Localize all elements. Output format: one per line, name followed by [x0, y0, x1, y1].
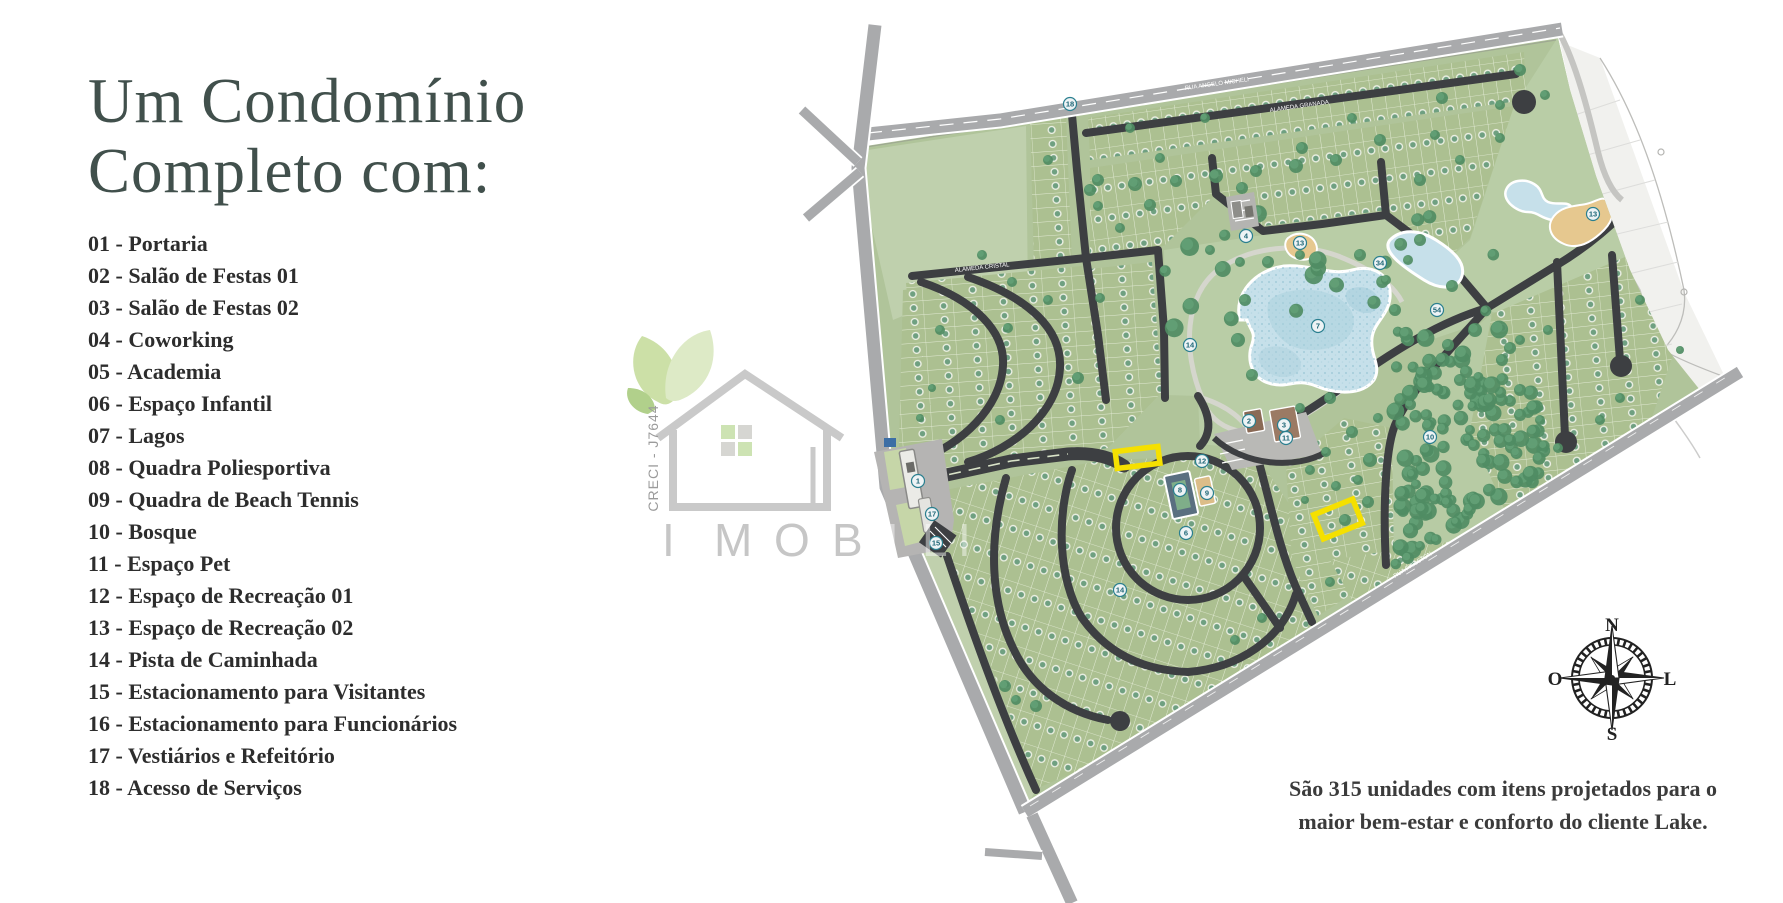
svg-text:12: 12	[1198, 457, 1206, 466]
svg-text:L: L	[1664, 669, 1677, 690]
svg-text:14: 14	[1186, 341, 1195, 350]
svg-text:13: 13	[1296, 239, 1304, 248]
svg-text:7: 7	[1316, 322, 1320, 331]
svg-text:18: 18	[1066, 100, 1074, 109]
svg-text:I: I	[958, 514, 971, 566]
svg-text:1: 1	[916, 477, 920, 486]
svg-text:11: 11	[1282, 434, 1290, 443]
svg-text:M: M	[714, 514, 752, 566]
svg-text:9: 9	[1205, 489, 1209, 498]
svg-text:8: 8	[1178, 486, 1182, 495]
svg-text:I: I	[886, 514, 899, 566]
svg-text:B: B	[832, 514, 863, 566]
svg-text:2: 2	[1247, 417, 1251, 426]
svg-text:CRECI - J7644: CRECI - J7644	[645, 404, 661, 511]
svg-text:14: 14	[1116, 586, 1125, 595]
svg-text:O: O	[774, 514, 810, 566]
svg-text:N: N	[1605, 615, 1619, 636]
svg-text:S: S	[1607, 724, 1618, 745]
svg-text:3: 3	[1282, 421, 1286, 430]
svg-text:13: 13	[1589, 210, 1597, 219]
svg-text:I: I	[662, 514, 675, 566]
svg-text:L: L	[922, 514, 948, 566]
svg-text:54: 54	[1433, 306, 1442, 315]
svg-text:6: 6	[1184, 529, 1188, 538]
svg-text:O: O	[1548, 669, 1563, 690]
svg-text:34: 34	[1376, 259, 1385, 268]
svg-text:10: 10	[1426, 433, 1434, 442]
